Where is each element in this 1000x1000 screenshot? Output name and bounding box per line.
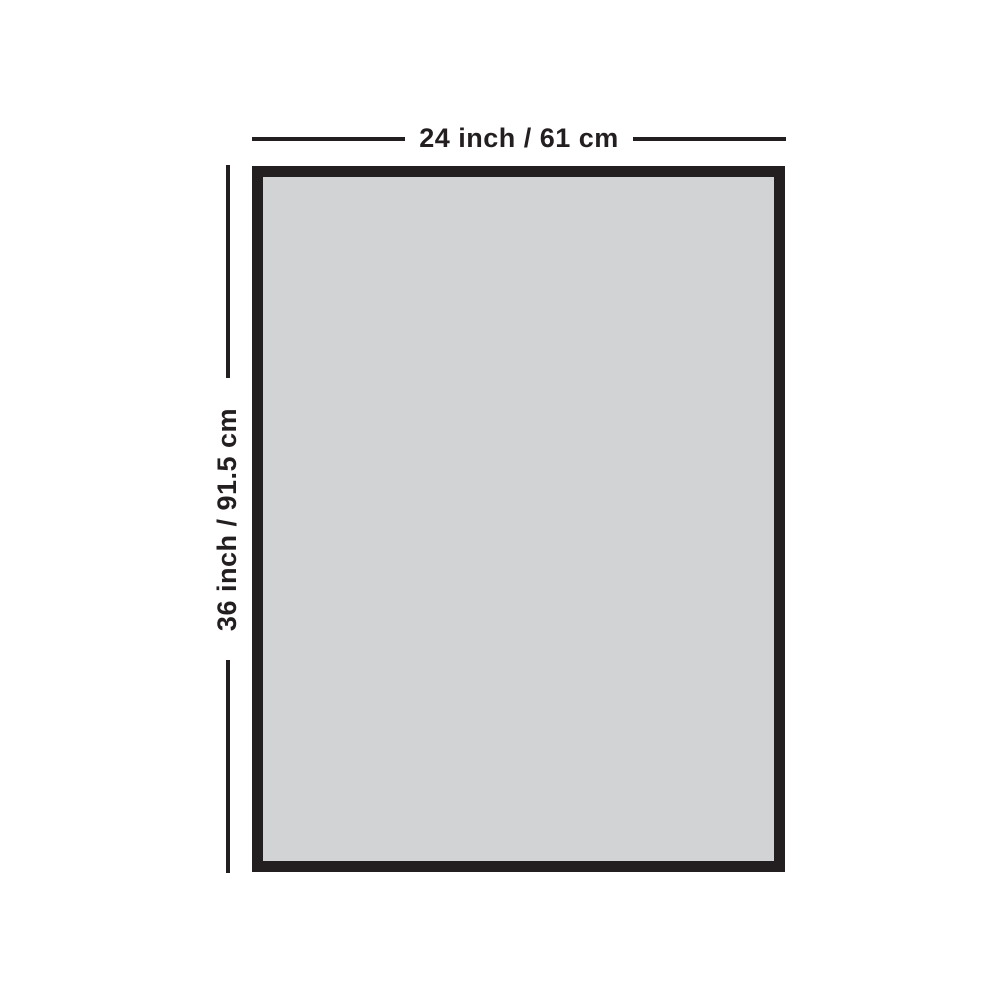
- product-rectangle: [252, 166, 785, 872]
- height-dimension-line-top: [226, 165, 230, 378]
- width-dimension: 24 inch / 61 cm: [252, 124, 786, 154]
- width-dimension-line-right: [633, 137, 786, 141]
- height-dimension-label: 36 inch / 91.5 cm: [215, 407, 242, 630]
- dimension-diagram: 24 inch / 61 cm 36 inch / 91.5 cm: [0, 0, 1000, 1000]
- height-dimension-line-bottom: [226, 660, 230, 873]
- height-dimension: 36 inch / 91.5 cm: [211, 165, 245, 873]
- width-dimension-label: 24 inch / 61 cm: [419, 125, 619, 154]
- height-dimension-label-wrap: 36 inch / 91.5 cm: [211, 378, 245, 660]
- width-dimension-line-left: [252, 137, 405, 141]
